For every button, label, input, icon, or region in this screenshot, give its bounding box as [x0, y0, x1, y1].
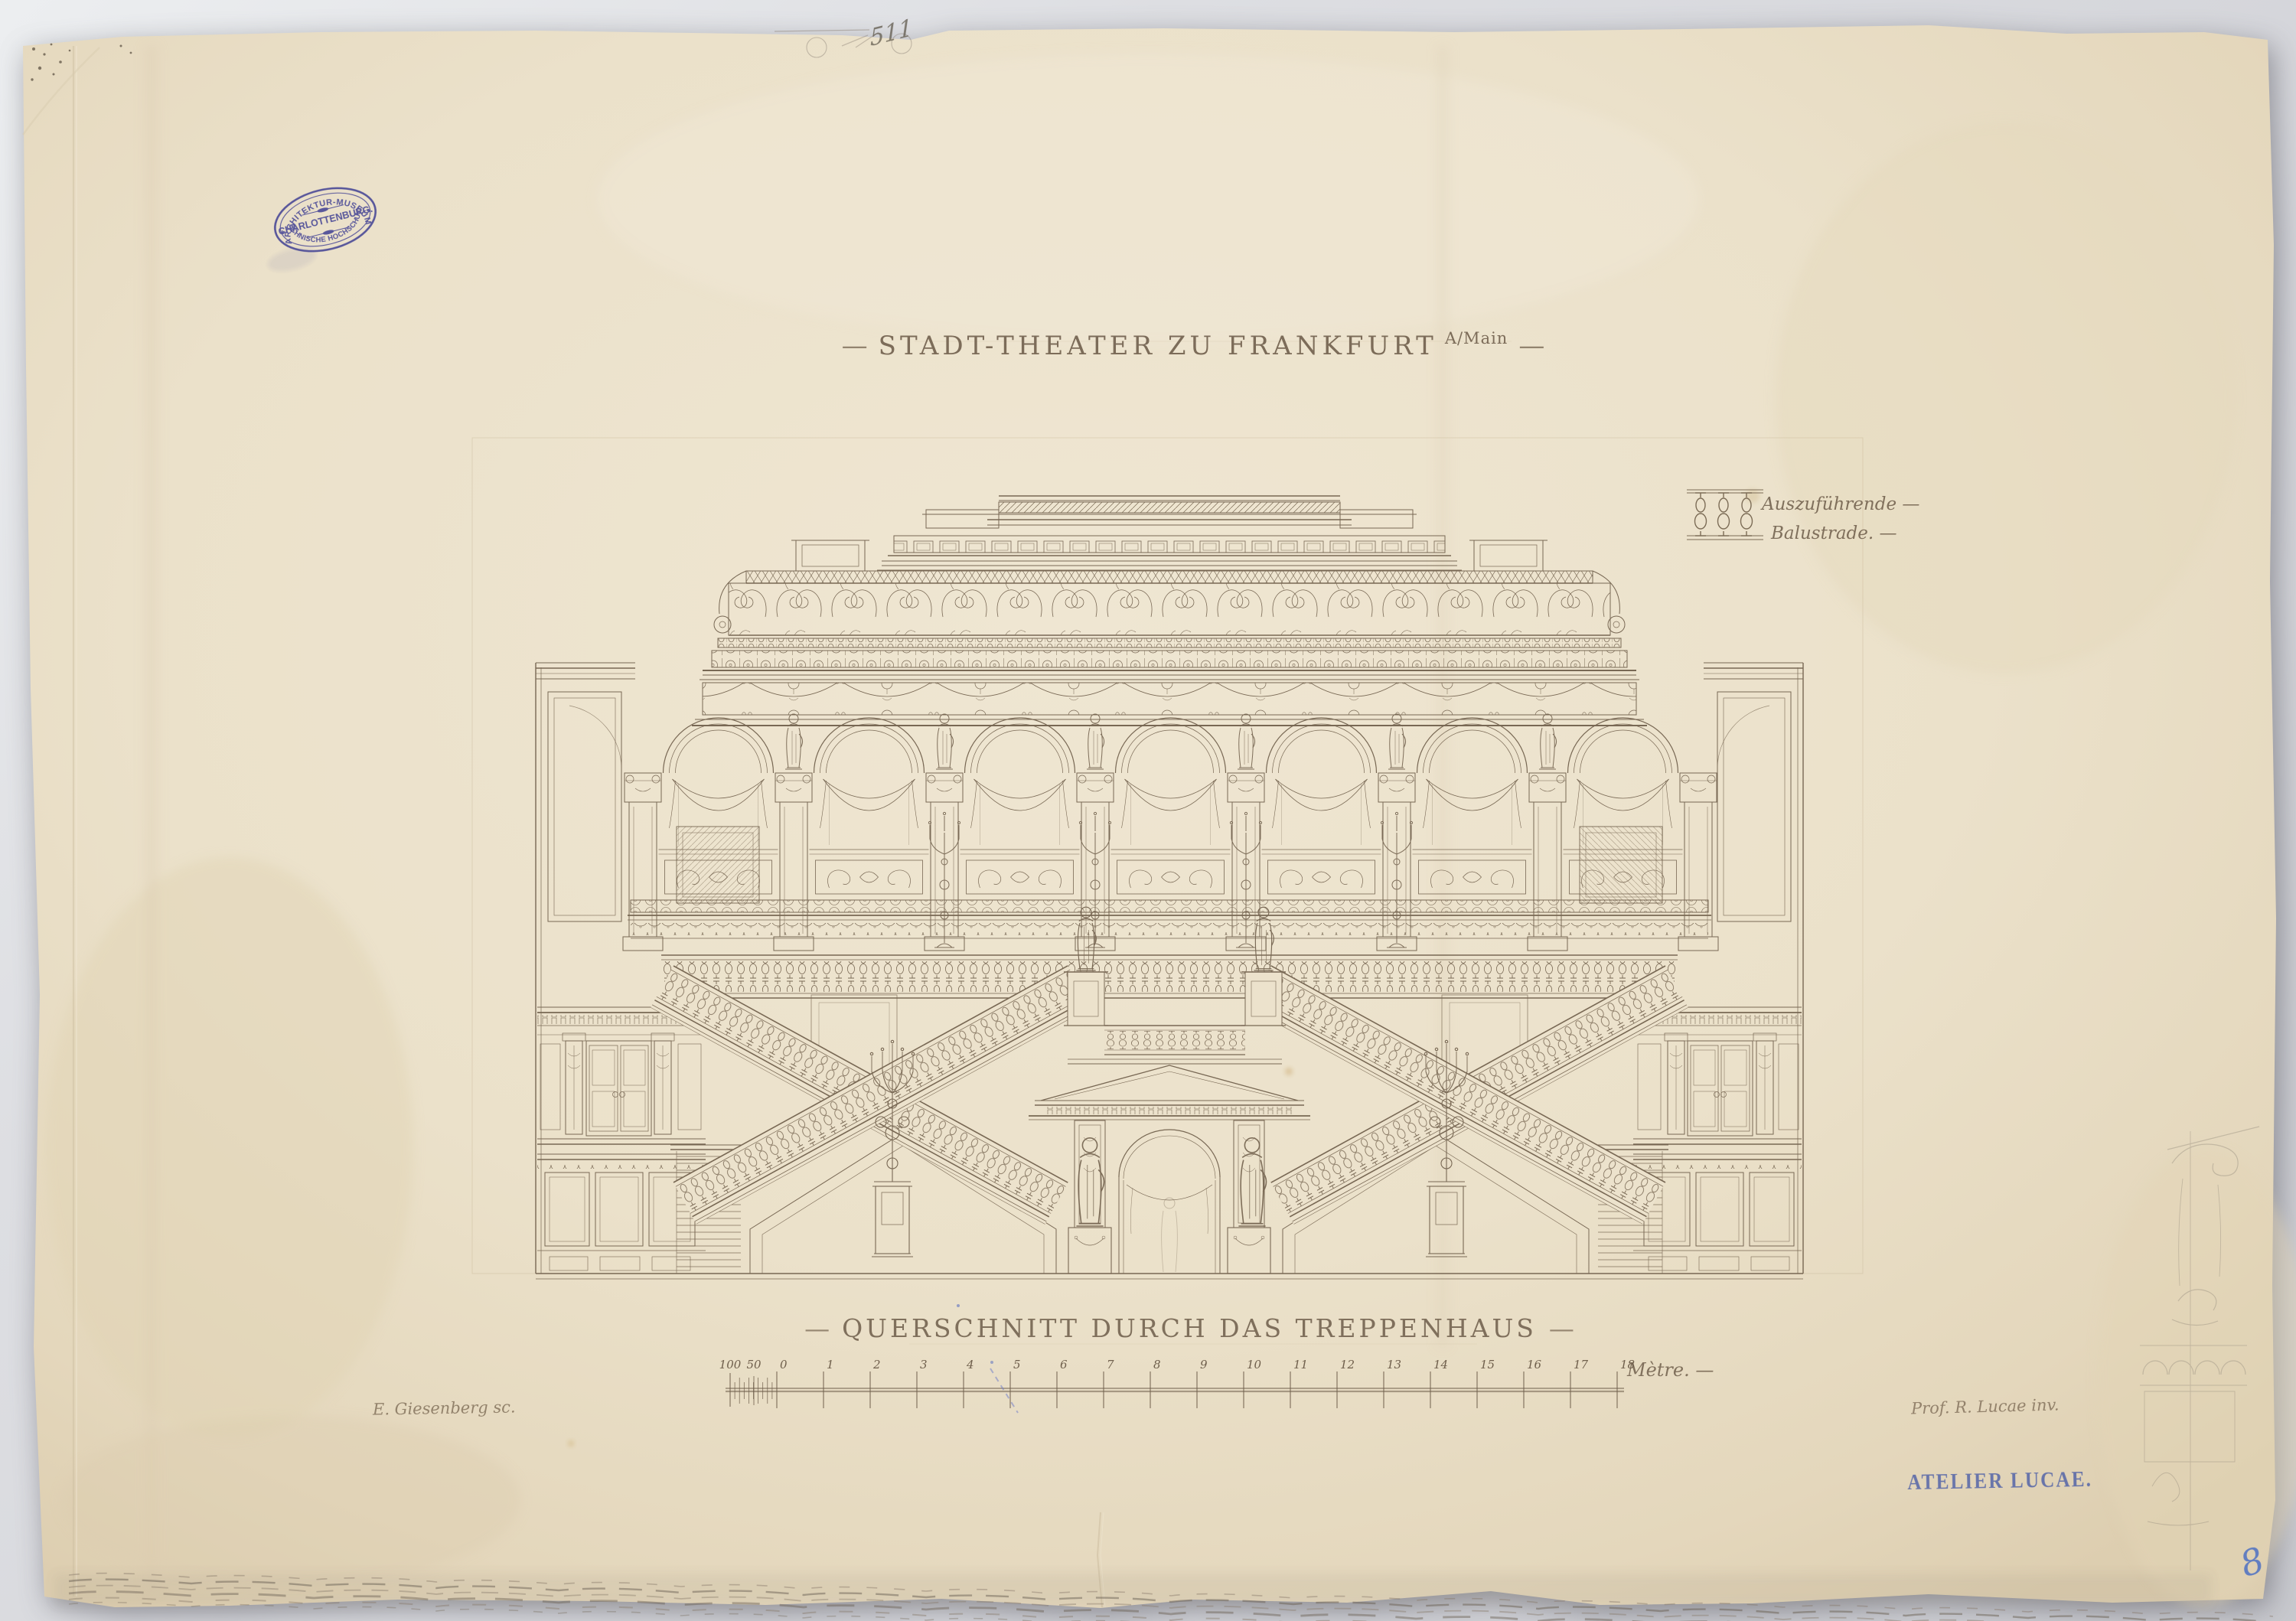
scale-tick-label: 3 [920, 1358, 928, 1371]
caption-text: QUERSCHNITT DURCH DAS TREPPENHAUS [842, 1313, 1537, 1343]
gallery-balustrade [661, 955, 1678, 998]
scale-unit-label: Mètre. — [1627, 1359, 1714, 1381]
scale-tick-label: 15 [1480, 1358, 1495, 1371]
scale-tick-label: 4 [966, 1358, 974, 1371]
bottom-edge-scribbles [54, 1574, 2273, 1621]
architect-signature: Prof. R. Lucae inv. [1911, 1395, 2060, 1417]
caption-dash-right: — [1549, 1313, 1574, 1343]
caption-dash-left: — [804, 1313, 830, 1343]
scale-tick-label: 10 [1247, 1358, 1262, 1371]
scale-tick-label: 6 [1060, 1358, 1068, 1371]
architectural-drawing-scan: 100500123456789101112131415161718 ARCHIT… [0, 0, 2296, 1621]
scale-tick-label: 0 [780, 1358, 788, 1371]
scale-tick-label: 2 [872, 1358, 881, 1371]
scale-tick-label: 14 [1433, 1358, 1448, 1371]
scale-tick-label: 17 [1574, 1358, 1589, 1371]
scale-tick-label: 16 [1527, 1358, 1542, 1371]
atelier-lucae-stamp: ATELIER LUCAE. [1907, 1468, 2092, 1496]
title-dash-right: — [1518, 331, 1544, 361]
title-dash-left: — [842, 331, 868, 361]
scale-tick-label: 100 [719, 1358, 742, 1371]
page-title: — STADT-THEATER ZU FRANKFURT A/Main — [831, 331, 1556, 361]
scale-tick-label: 1 [827, 1358, 834, 1371]
scanned-sheet-photo: 100500123456789101112131415161718 ARCHIT… [0, 0, 2296, 1621]
scale-tick-label: 13 [1387, 1358, 1401, 1371]
title-suffix: A/Main [1445, 329, 1508, 347]
scale-tick-label: 50 [746, 1358, 762, 1371]
scale-tick-label: 8 [1153, 1358, 1161, 1371]
scale-tick-label: 5 [1013, 1358, 1021, 1371]
scale-tick-label: 11 [1293, 1358, 1308, 1371]
drawing-caption: — QUERSCHNITT DURCH DAS TREPPENHAUS — [792, 1313, 1587, 1343]
legend-line-1: Auszuführende — [1762, 494, 1919, 514]
title-text: STADT-THEATER ZU FRANKFURT [879, 331, 1437, 361]
engraver-signature: E. Giesenberg sc. [373, 1398, 516, 1418]
legend-line-2: Balustrade. — [1771, 523, 1897, 543]
scale-tick-label: 9 [1200, 1358, 1208, 1371]
scale-tick-label: 7 [1107, 1358, 1114, 1371]
scale-tick-label: 12 [1340, 1358, 1355, 1371]
